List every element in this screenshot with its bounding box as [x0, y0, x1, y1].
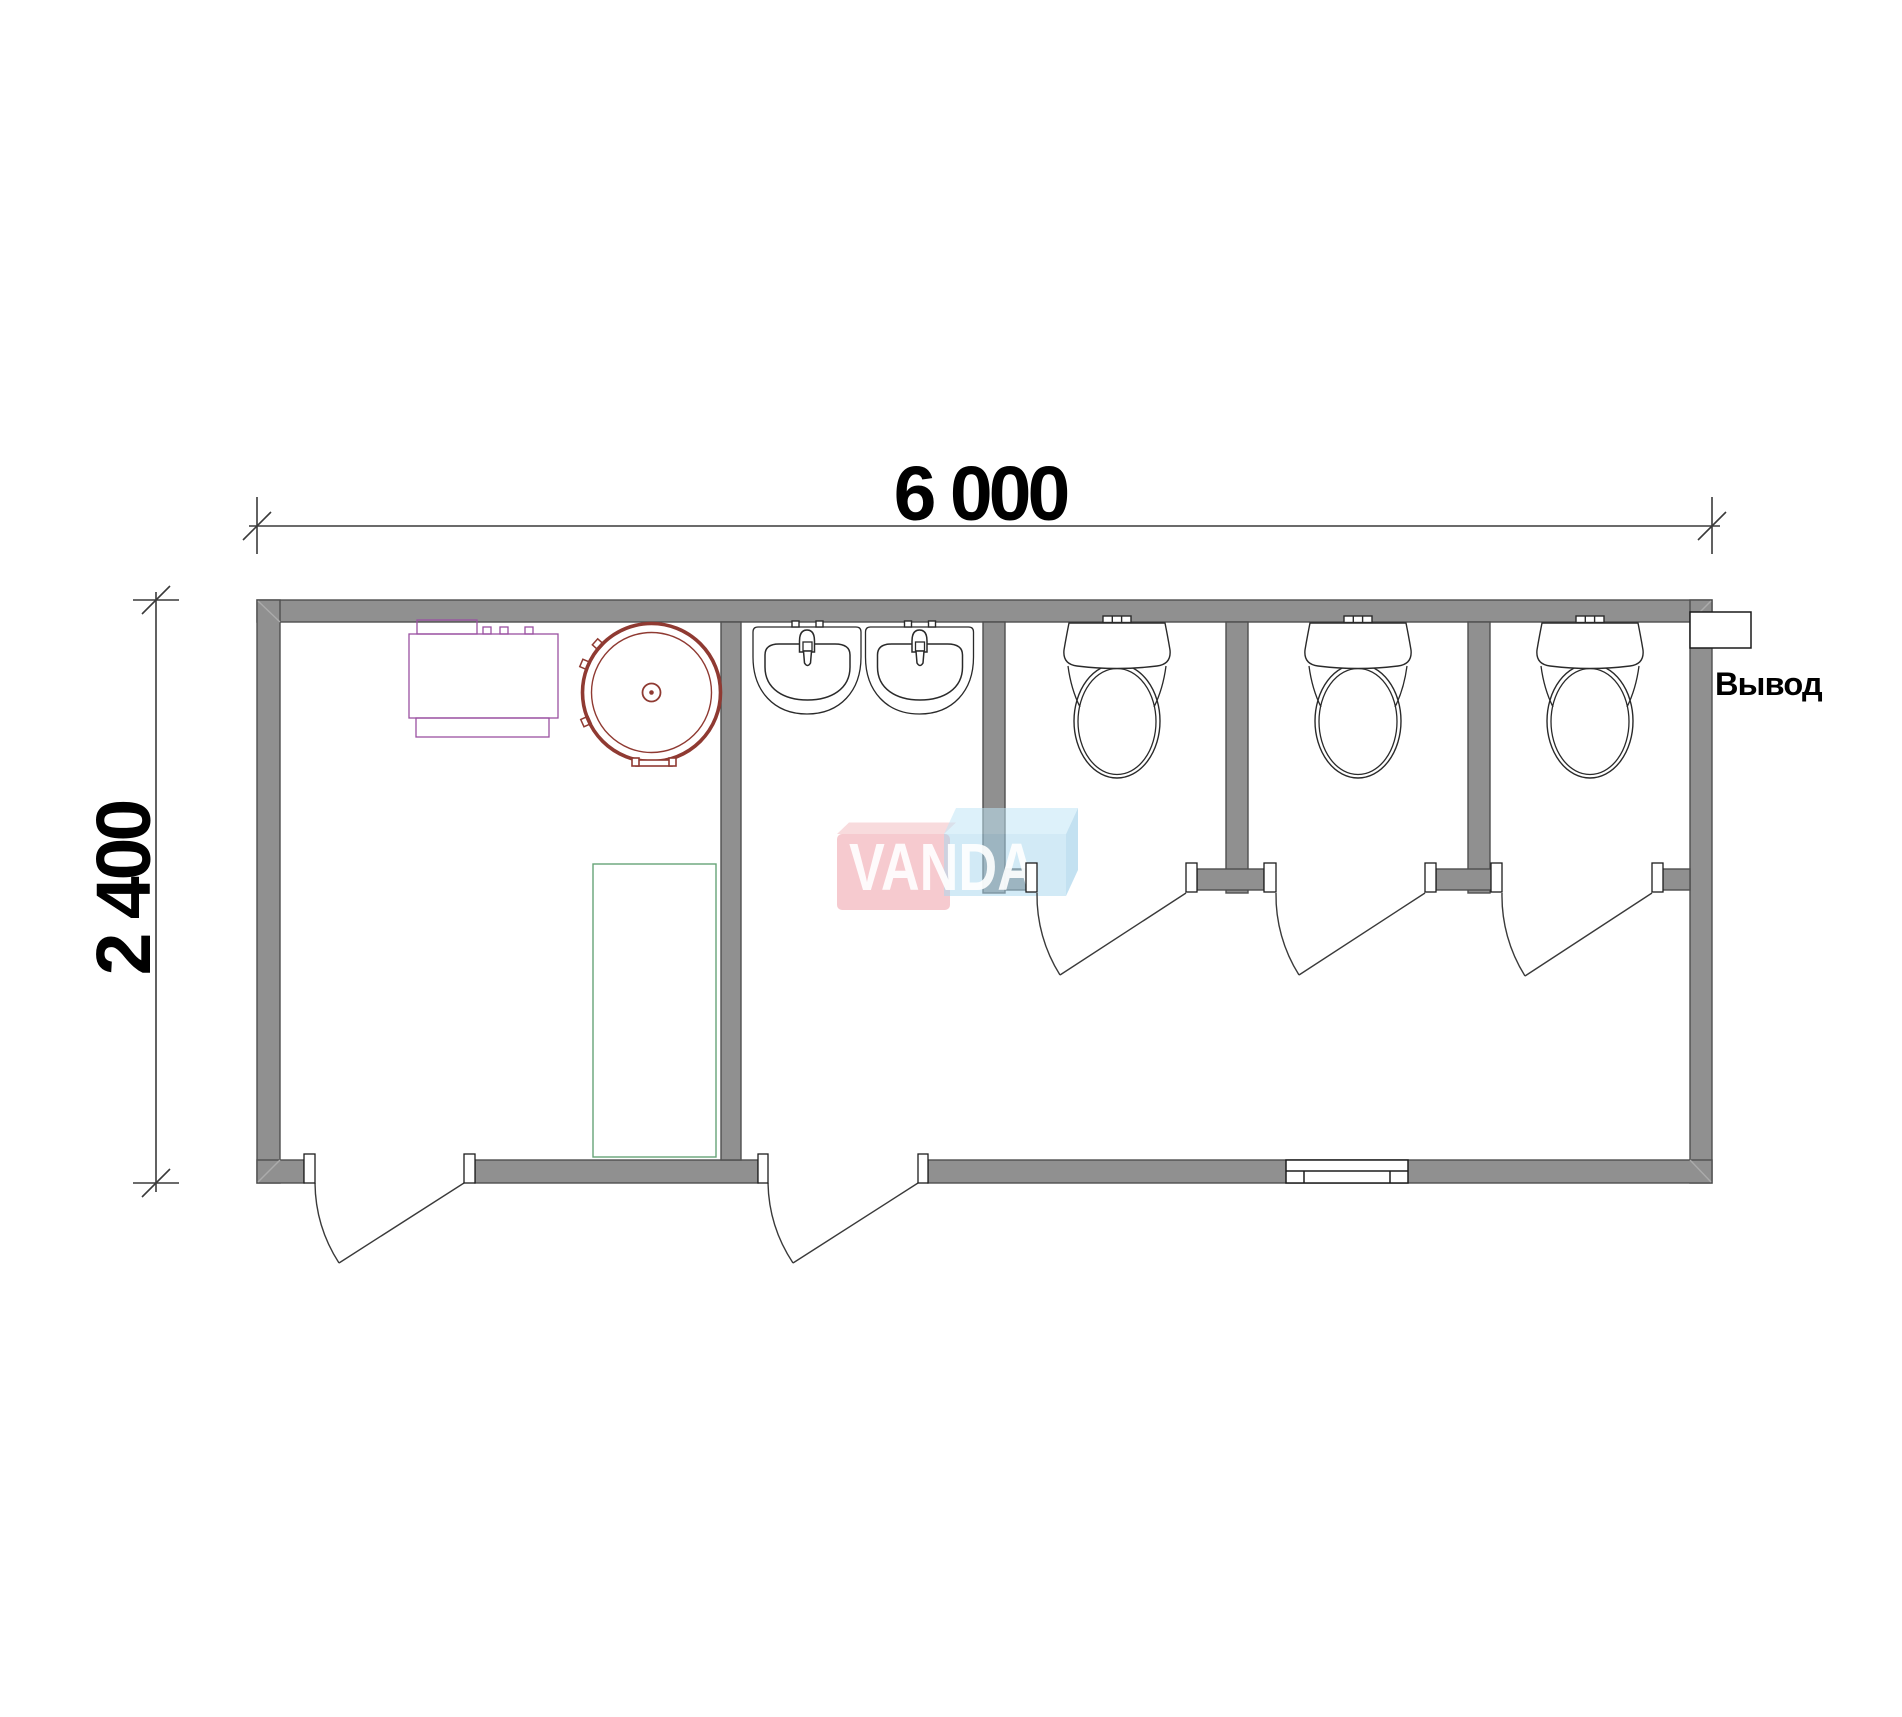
svg-text:VANDA: VANDA [849, 830, 1036, 905]
svg-text:Вывод: Вывод [1715, 666, 1823, 702]
svg-text:2 400: 2 400 [81, 801, 167, 975]
svg-text:6 000: 6 000 [894, 451, 1068, 537]
